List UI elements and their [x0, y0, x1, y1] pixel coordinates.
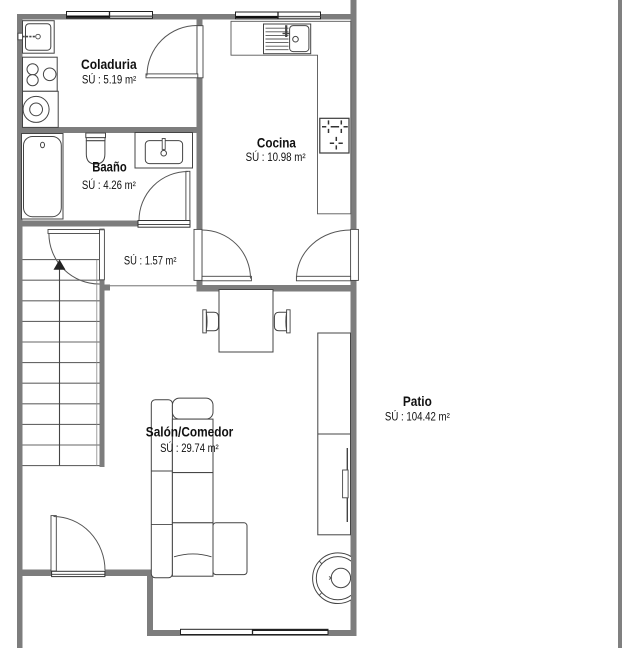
svg-text:SÚ : 5.19 m²: SÚ : 5.19 m²: [82, 73, 137, 86]
svg-text:Cocina: Cocina: [257, 135, 296, 151]
svg-text:Salón/Comedor: Salón/Comedor: [146, 423, 234, 439]
svg-text:SÚ : 1.57 m²: SÚ : 1.57 m²: [124, 255, 177, 268]
svg-text:Coladuria: Coladuria: [81, 56, 137, 72]
svg-text:SÚ : 10.98 m²: SÚ : 10.98 m²: [246, 151, 306, 164]
svg-text:SÚ : 4.26 m²: SÚ : 4.26 m²: [82, 179, 136, 192]
svg-text:Patio: Patio: [403, 393, 432, 409]
svg-text:SÚ : 104.42 m²: SÚ : 104.42 m²: [385, 411, 450, 424]
svg-text:Baaño: Baaño: [92, 159, 126, 175]
svg-text:SÚ : 29.74 m²: SÚ : 29.74 m²: [160, 442, 219, 455]
